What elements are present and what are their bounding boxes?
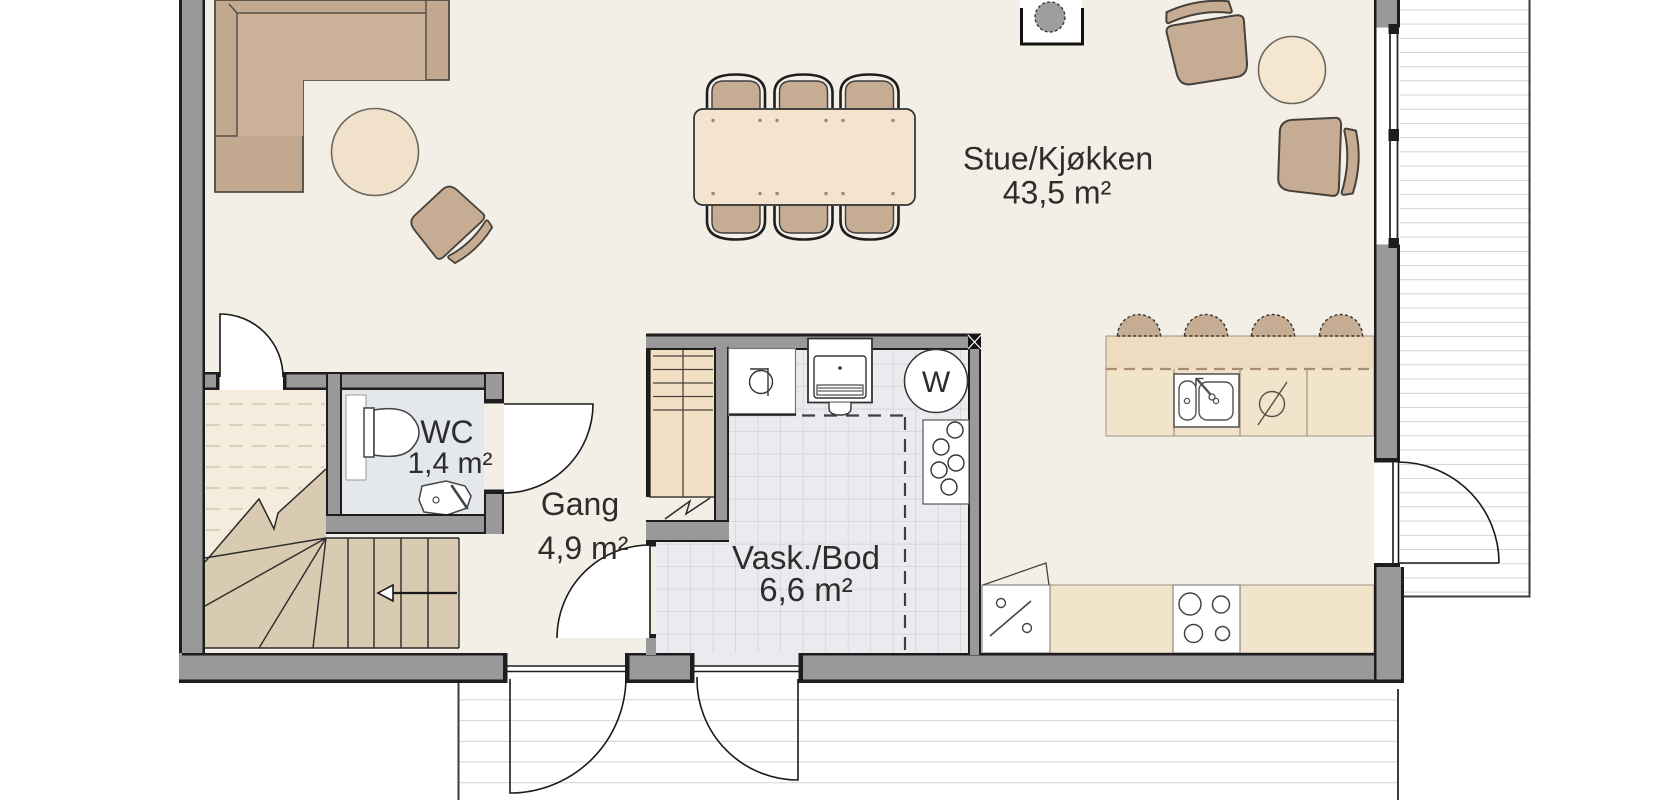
svg-text:4,9 m²: 4,9 m² — [538, 530, 629, 566]
svg-text:43,5 m²: 43,5 m² — [1003, 174, 1112, 210]
svg-text:1,4 m²: 1,4 m² — [407, 447, 492, 480]
svg-text:WC: WC — [420, 414, 473, 450]
svg-text:Gang: Gang — [541, 486, 619, 522]
svg-text:W: W — [922, 366, 951, 399]
svg-text:6,6 m²: 6,6 m² — [759, 571, 853, 608]
svg-text:Stue/Kjøkken: Stue/Kjøkken — [963, 141, 1153, 177]
